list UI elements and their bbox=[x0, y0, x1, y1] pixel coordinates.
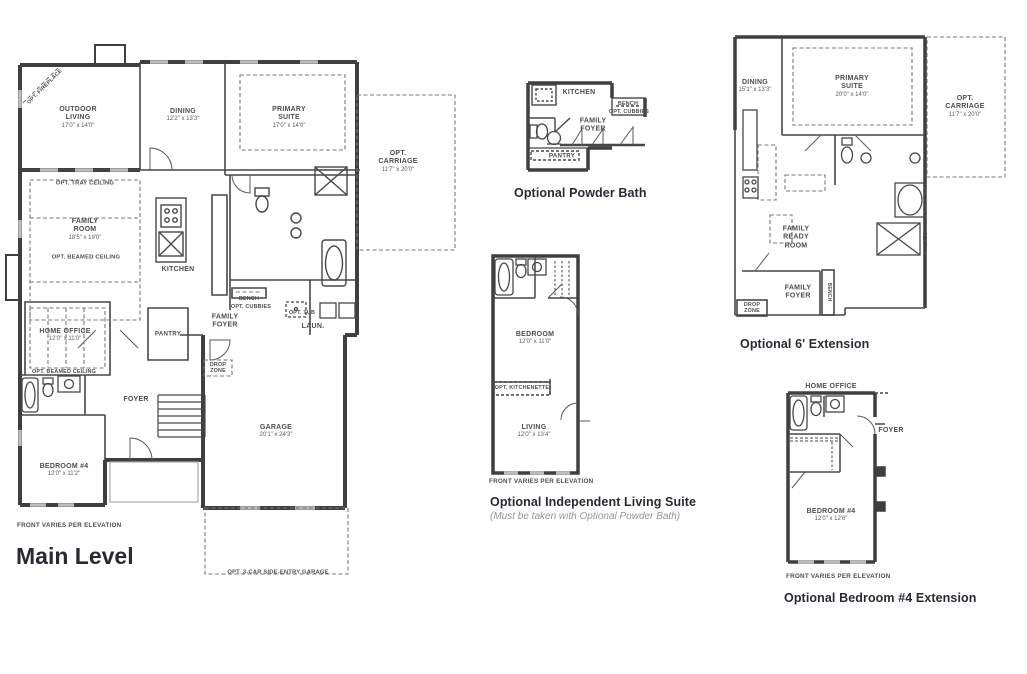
room-label-family-foyer: FAMILY FOYER bbox=[207, 314, 243, 331]
suite-door-swings bbox=[548, 284, 590, 421]
stairs-icon bbox=[158, 395, 205, 437]
extension6-title: Optional 6' Extension bbox=[740, 337, 869, 351]
sink-icon bbox=[910, 153, 920, 163]
room-label-kitchen: KITCHEN bbox=[162, 266, 195, 274]
pb-opt-cubbies-label: OPT. CUBBIES bbox=[609, 109, 649, 115]
room-label-laundry: LAUN. bbox=[302, 323, 325, 331]
toilet-icon bbox=[811, 396, 821, 402]
opt-beamed-ceiling-family-label: OPT. BEAMED CEILING bbox=[52, 255, 121, 262]
ext6-bench-label: BENCH bbox=[825, 283, 831, 302]
sink-icon bbox=[291, 228, 301, 238]
independent-suite-plan: BEDROOM 12'0" x 11'0" OPT. KITCHENETTE L… bbox=[480, 253, 700, 543]
suite-interior-walls bbox=[493, 256, 578, 395]
toilet-icon bbox=[842, 138, 852, 145]
kitchen-cabinets bbox=[743, 110, 757, 170]
opt-tray-ceiling-outline bbox=[30, 180, 140, 320]
room-label-outdoor-living: OUTDOOR LIVING 17'0" x 14'0" bbox=[50, 106, 106, 130]
opt-3car-garage-label: OPT. 3-CAR SIDE-ENTRY GARAGE bbox=[227, 570, 328, 577]
bedroom4-extension-plan: HOME OFFICE FOYER BEDROOM #4 12'0" x 12'… bbox=[760, 372, 1015, 617]
drop-zone-label: DROP ZONE bbox=[206, 362, 230, 374]
room-label-dining: DINING 12'2" x 13'3" bbox=[167, 108, 200, 124]
vanity-icon bbox=[826, 396, 844, 412]
dryer-icon bbox=[339, 303, 355, 318]
room-label-home-office: HOME OFFICE 12'0" x 11'0" bbox=[39, 328, 90, 344]
hall-bath-fixtures bbox=[22, 376, 80, 412]
room-label-b4ext-foyer: FOYER bbox=[878, 427, 903, 435]
suite-bath-fixtures bbox=[495, 259, 546, 295]
room-label-ext6-carriage: OPT. CARRIAGE 11'7" x 20'0" bbox=[940, 95, 990, 119]
bench-label: BENCH bbox=[239, 296, 259, 302]
chimney-icon bbox=[6, 45, 125, 300]
extension6-plan: DINING 15'1" x 13'3" PRIMARY SUITE 20'0"… bbox=[725, 25, 1025, 365]
floorplan-sheet: OPT. FIREPLACE OUTDOOR LIVING 17'0" x 14… bbox=[0, 0, 1027, 674]
room-label-bedroom4: BEDROOM #4 12'0" x 11'2" bbox=[40, 463, 89, 479]
ext6-door-swings bbox=[755, 135, 871, 271]
opt-cubbies-label: OPT. CUBBIES bbox=[231, 304, 271, 310]
room-label-pb-pantry: PANTRY bbox=[549, 152, 575, 159]
bathtub-icon bbox=[495, 259, 513, 295]
opt-kitchenette-label: OPT. KITCHENETTE bbox=[495, 385, 549, 391]
independent-suite-title: Optional Independent Living Suite bbox=[490, 495, 696, 509]
room-label-suite-living: LIVING 12'0" x 13'4" bbox=[518, 424, 551, 440]
washer-icon bbox=[320, 303, 336, 318]
independent-suite-subtitle: (Must be taken with Optional Powder Bath… bbox=[490, 511, 680, 522]
powder-bath-title: Optional Powder Bath bbox=[514, 186, 647, 200]
room-label-opt-carriage: OPT. CARRIAGE 11'7" x 20'0" bbox=[373, 150, 423, 174]
room-label-ext6-primary: PRIMARY SUITE 20'0" x 14'0" bbox=[827, 75, 877, 99]
vanity-icon bbox=[58, 376, 80, 392]
vanity-icon bbox=[528, 259, 546, 275]
room-label-family-ready-room: FAMILY READY ROOM bbox=[779, 225, 813, 250]
ext6-drop-zone-label: DROP ZONE bbox=[740, 302, 764, 314]
toilet-icon bbox=[255, 188, 269, 196]
powder-bath-plan: KITCHEN BENCH OPT. CUBBIES FAMILY FOYER … bbox=[500, 70, 695, 215]
main-level-footnote: FRONT VARIES PER ELEVATION bbox=[17, 522, 121, 529]
room-label-pb-kitchen: KITCHEN bbox=[563, 89, 596, 97]
opt-tray-ceiling-label: OPT. TRAY CEILING bbox=[56, 181, 114, 188]
opt-beamed-ceiling-office-label: OPT. BEAMED CEILING bbox=[32, 369, 96, 375]
main-level-plan: OPT. FIREPLACE OUTDOOR LIVING 17'0" x 14… bbox=[0, 30, 470, 620]
room-label-primary-suite: PRIMARY SUITE 17'0" x 14'0" bbox=[264, 106, 314, 130]
b4ext-footnote: FRONT VARIES PER ELEVATION bbox=[786, 573, 890, 580]
bedroom4-extension-plan-drawing bbox=[760, 372, 1015, 617]
room-label-family-room: FAMILY ROOM 18'5" x 19'0" bbox=[60, 218, 110, 242]
b4ext-door-swings bbox=[792, 416, 875, 488]
room-label-ext6-dining: DINING 15'1" x 13'3" bbox=[739, 79, 772, 95]
room-label-b4ext-bedroom4: BEDROOM #4 12'0" x 12'6" bbox=[807, 508, 856, 524]
room-label-pb-family-foyer: FAMILY FOYER bbox=[576, 118, 610, 135]
room-label-foyer: FOYER bbox=[123, 396, 148, 404]
b4ext-bath-fixtures bbox=[790, 396, 844, 430]
main-level-title: Main Level bbox=[16, 543, 134, 570]
kitchen-island-icon bbox=[156, 198, 186, 262]
pedestal-sink-icon bbox=[548, 132, 561, 145]
ext6-seat-label: SEAT bbox=[920, 232, 926, 246]
suite-footnote: FRONT VARIES PER ELEVATION bbox=[489, 478, 593, 485]
opt-3car-garage-outline bbox=[205, 508, 348, 574]
opt-tub-label: OPT. TUB bbox=[289, 310, 315, 316]
room-label-pantry: PANTRY bbox=[155, 330, 181, 337]
bathtub-icon bbox=[895, 183, 925, 217]
pb-bench-label: BENCH bbox=[618, 101, 638, 107]
room-label-b4ext-home-office: HOME OFFICE bbox=[805, 383, 856, 391]
powder-fixtures bbox=[530, 124, 561, 145]
sink-icon bbox=[861, 153, 871, 163]
room-label-garage: GARAGE 20'1" x 24'3" bbox=[260, 424, 293, 440]
room-label-suite-bedroom: BEDROOM 12'0" x 11'0" bbox=[516, 331, 554, 347]
ext6-dashed bbox=[758, 37, 1005, 243]
bedroom4-extension-title: Optional Bedroom #4 Extension bbox=[784, 591, 977, 605]
primary-bath-fixtures bbox=[255, 167, 347, 286]
sink-icon bbox=[291, 213, 301, 223]
entry-porch-outline bbox=[110, 462, 198, 502]
closet-shelves bbox=[555, 261, 569, 296]
room-label-ext6-family-foyer: FAMILY FOYER bbox=[780, 285, 816, 302]
